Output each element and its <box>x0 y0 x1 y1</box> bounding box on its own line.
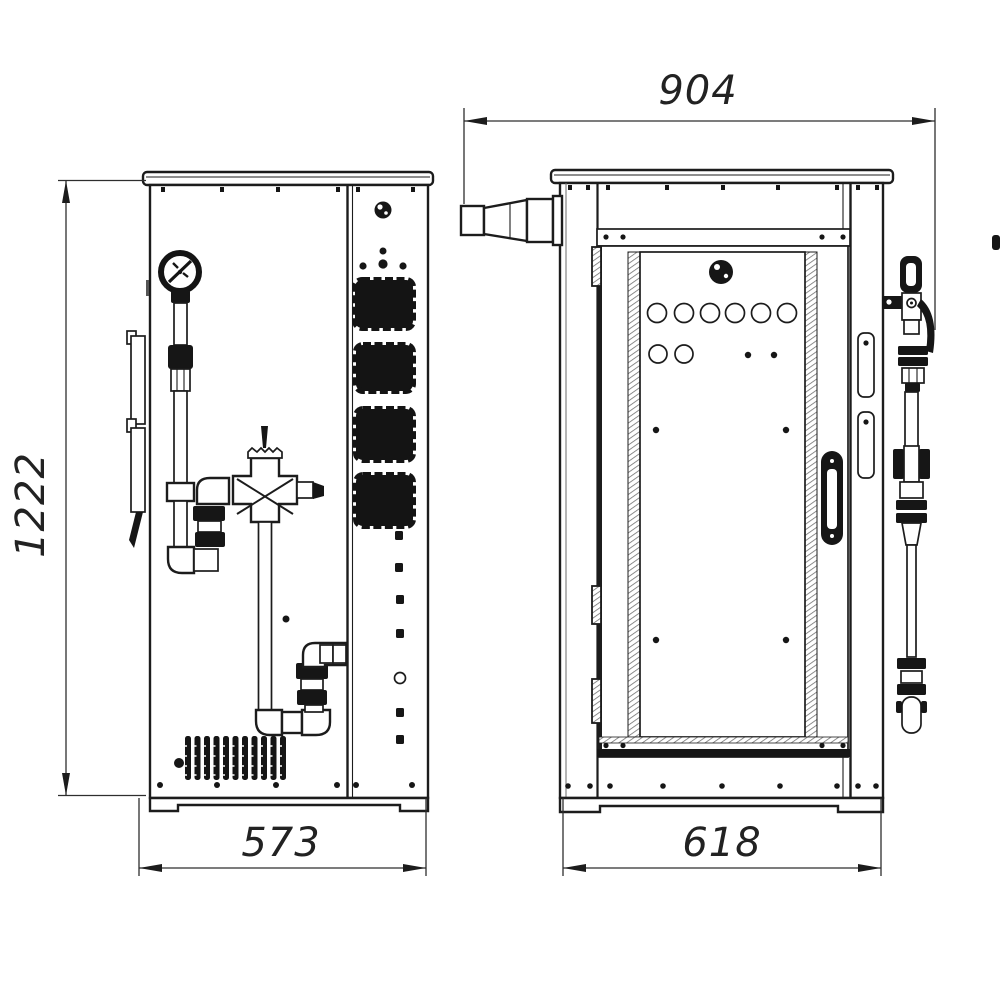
door-bottom-rail <box>597 749 850 757</box>
drawing-canvas: 904 1222 573 618 <box>0 0 1000 1000</box>
wall-label-mark <box>146 280 149 296</box>
pipe-elbow <box>168 547 194 573</box>
valve-riser <box>193 478 229 547</box>
front-top-rail <box>597 229 850 246</box>
panel-knob <box>375 202 392 219</box>
vent-block <box>355 280 413 328</box>
wall-arm <box>882 296 904 309</box>
mounting-brackets <box>127 280 149 548</box>
door-knob <box>709 260 733 284</box>
pipe-coupling <box>167 483 194 501</box>
front-view <box>461 170 1000 812</box>
door-inner-panel <box>640 252 805 737</box>
door-bottom-band <box>599 737 848 743</box>
dimension-height: 1222 <box>8 181 146 796</box>
pipe-end-cap <box>902 697 921 733</box>
door-stile-left <box>628 252 640 737</box>
dimension-label-front-width: 618 <box>682 820 761 866</box>
panel-dot <box>380 248 387 255</box>
threaded-collar <box>194 549 218 571</box>
door-hinge <box>592 247 601 286</box>
inlet-nozzle <box>461 196 562 245</box>
dimension-label-side-width: 573 <box>241 820 320 866</box>
technical-drawing: 904 1222 573 618 <box>0 0 1000 1000</box>
dimension-label-height: 1222 <box>8 452 54 558</box>
front-top-cap <box>551 170 893 183</box>
dimension-front-width: 618 <box>563 798 881 876</box>
external-valve-assembly <box>882 256 935 733</box>
pipe-hex-nut <box>171 369 190 391</box>
dimension-label-depth: 904 <box>658 68 737 114</box>
vent-block <box>356 409 413 460</box>
vent-block <box>356 345 413 391</box>
dimension-side-width: 573 <box>139 798 426 876</box>
pipe-union <box>168 345 193 369</box>
front-base-feet <box>560 798 883 812</box>
door-hinge <box>592 586 601 624</box>
external-pipe <box>905 392 918 450</box>
side-top-cap <box>143 172 433 185</box>
bracket-hook <box>129 512 143 548</box>
valve-side-port <box>297 482 313 498</box>
cabinet-door <box>592 246 850 757</box>
door-hinge <box>592 679 601 723</box>
door-handle <box>821 451 843 545</box>
side-base-feet <box>150 798 428 811</box>
vent-block <box>356 475 413 526</box>
elbow-to-valve <box>197 478 229 504</box>
door-stile-right <box>805 252 817 737</box>
edge-fitting-cut <box>992 235 1000 250</box>
bay-screw <box>283 616 290 623</box>
side-view <box>127 172 433 811</box>
